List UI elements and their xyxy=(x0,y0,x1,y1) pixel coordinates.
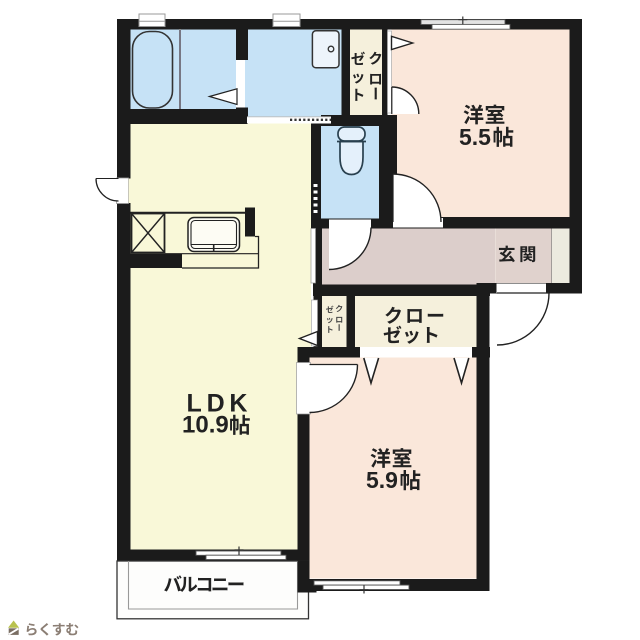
svg-text:5.5: 5.5 xyxy=(459,124,491,150)
svg-text:5.9: 5.9 xyxy=(366,467,398,493)
svg-text:10.9: 10.9 xyxy=(182,412,229,439)
